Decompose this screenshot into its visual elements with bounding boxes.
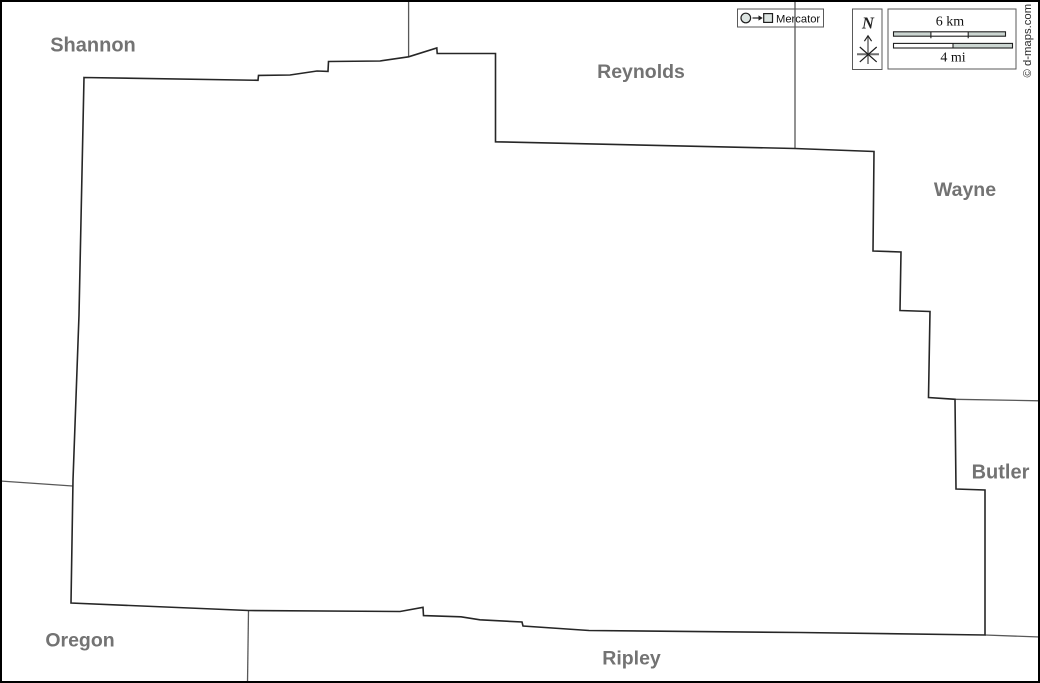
svg-text:Butler: Butler — [972, 462, 1030, 484]
svg-text:N: N — [861, 14, 875, 33]
svg-text:4 mi: 4 mi — [940, 51, 965, 66]
svg-text:6 km: 6 km — [936, 15, 965, 30]
svg-text:Mercator: Mercator — [776, 13, 820, 25]
svg-text:Ripley: Ripley — [602, 648, 661, 670]
svg-text:Reynolds: Reynolds — [597, 61, 685, 83]
svg-text:Oregon: Oregon — [45, 630, 114, 652]
svg-text:Shannon: Shannon — [50, 35, 136, 57]
svg-text:© d-maps.com: © d-maps.com — [1022, 4, 1034, 78]
svg-text:Wayne: Wayne — [934, 179, 996, 201]
